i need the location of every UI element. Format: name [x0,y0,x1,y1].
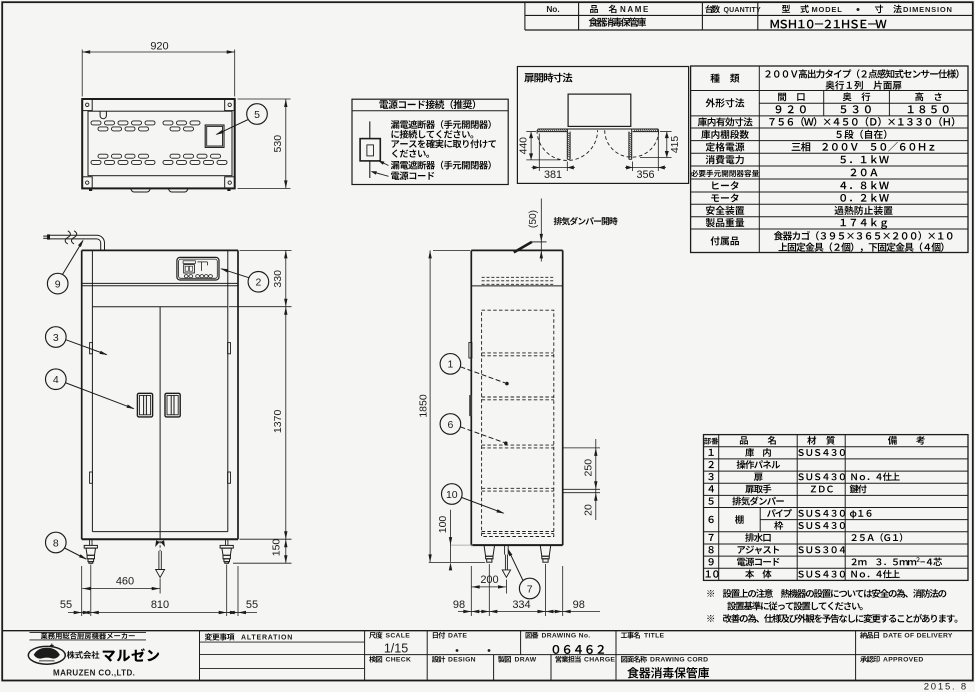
svg-text:CHARGE: CHARGE [584,657,615,664]
svg-text:6: 6 [447,419,453,431]
svg-text:DRAWING CORD: DRAWING CORD [650,657,708,664]
svg-text:100: 100 [437,516,449,534]
svg-text:2: 2 [255,277,261,289]
svg-text:55: 55 [246,599,258,611]
svg-text:2015. 8: 2015. 8 [924,682,968,692]
svg-text:(50): (50) [528,210,539,228]
svg-text:DRAW: DRAW [515,657,537,664]
svg-text:3: 3 [53,332,59,344]
svg-text:920: 920 [150,41,168,53]
svg-text:TITLE: TITLE [644,633,665,640]
svg-text:334: 334 [512,599,530,611]
svg-text:SCALE: SCALE [386,633,411,640]
svg-text:250: 250 [583,459,595,477]
svg-text:530: 530 [272,135,284,153]
svg-text:No.: No. [546,4,559,14]
svg-text:DATE: DATE [448,633,467,640]
svg-text:MODEL: MODEL [812,5,843,14]
svg-text:NAME: NAME [620,5,650,14]
svg-text:10: 10 [446,489,458,501]
svg-text:460: 460 [116,576,134,588]
svg-text:7: 7 [527,583,533,595]
svg-text:4: 4 [53,374,59,386]
svg-text:DIMENSION: DIMENSION [903,5,953,14]
svg-text:5: 5 [254,109,260,121]
svg-text:MARUZEN CO.,LTD.: MARUZEN CO.,LTD. [53,668,135,677]
svg-text:QUANTITY: QUANTITY [724,7,762,14]
svg-text:1370: 1370 [272,410,284,434]
svg-text:1850: 1850 [417,394,429,418]
svg-text:DATE OF DELIVERY: DATE OF DELIVERY [883,633,953,640]
svg-text:330: 330 [272,270,284,288]
svg-text:8: 8 [53,537,59,549]
svg-text:ALTERATION: ALTERATION [241,635,293,642]
svg-text:356: 356 [636,169,654,181]
svg-text:55: 55 [60,599,72,611]
svg-text:1/15: 1/15 [384,642,408,656]
svg-text:CHECK: CHECK [386,657,412,664]
svg-text:9: 9 [55,278,61,290]
svg-text:150: 150 [271,539,283,557]
svg-text:810: 810 [151,599,169,611]
svg-text:381: 381 [544,169,562,181]
svg-text:DRAWING No.: DRAWING No. [542,633,591,640]
svg-text:20: 20 [583,504,595,516]
svg-text:98: 98 [453,599,465,611]
svg-text:APPROVED: APPROVED [883,657,924,664]
svg-text:415: 415 [670,136,681,154]
svg-text:DESIGN: DESIGN [448,657,476,664]
svg-text:1: 1 [447,359,453,371]
svg-text:440: 440 [519,137,530,155]
svg-text:98: 98 [573,599,585,611]
